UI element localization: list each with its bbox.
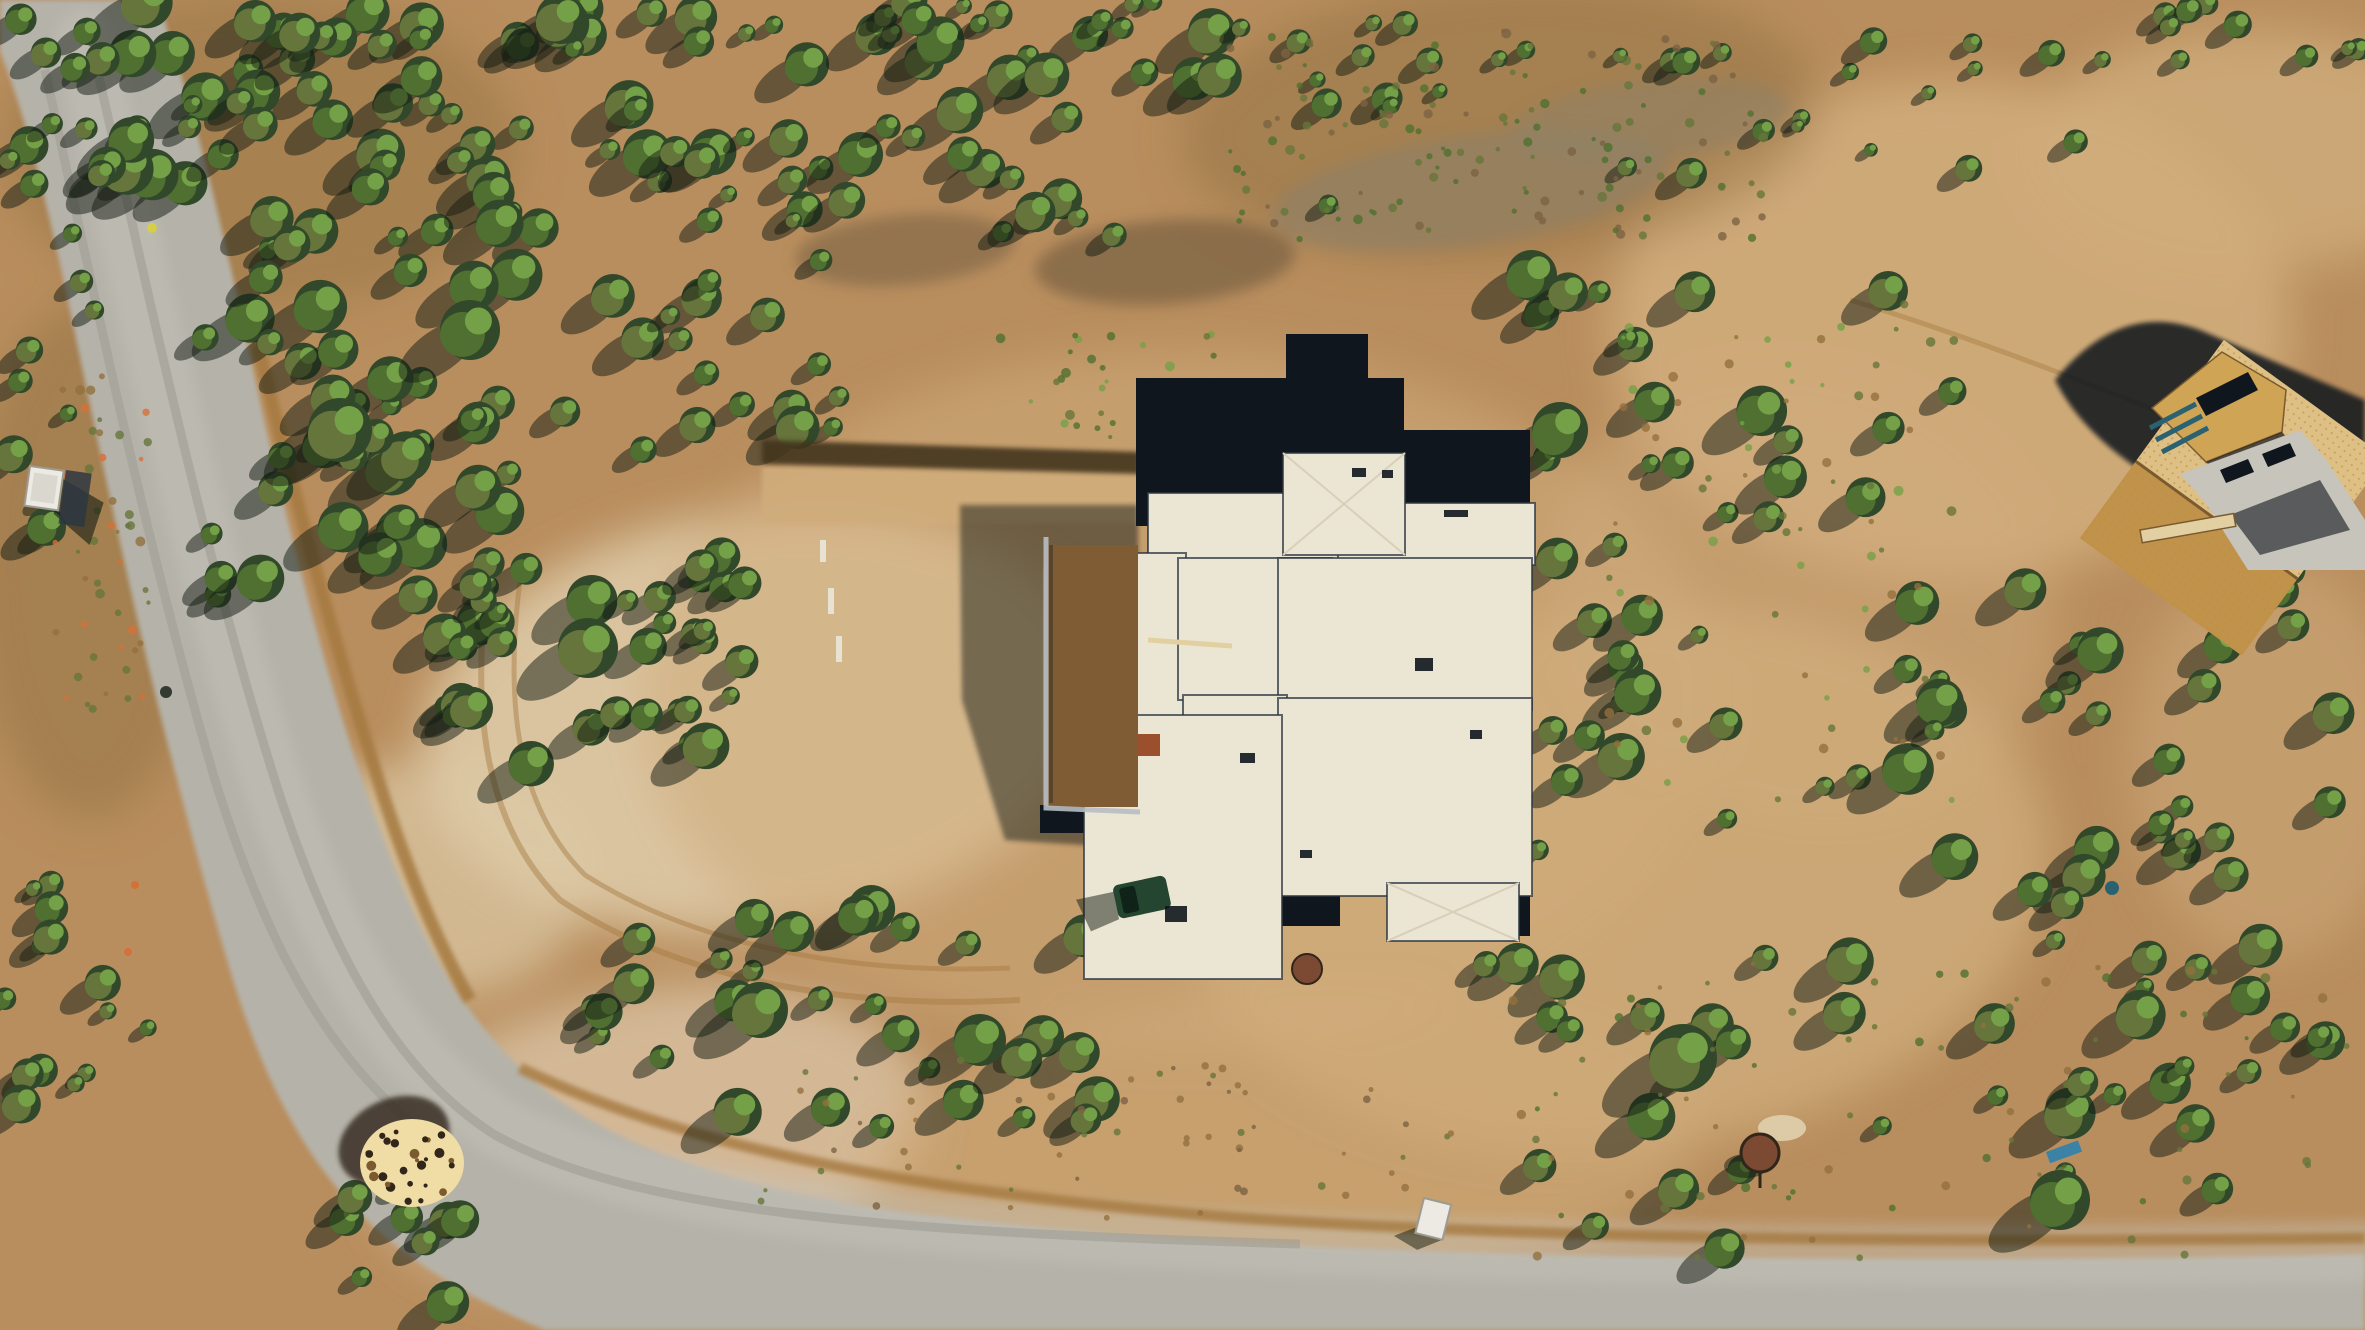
tree-canopy [588, 581, 611, 604]
tree-canopy [1555, 409, 1580, 434]
tree-canopy [129, 36, 150, 57]
tree-canopy [2143, 980, 2151, 988]
brush-dot [1914, 583, 1921, 590]
brush-dot [1616, 204, 1624, 212]
brush-dot [2260, 973, 2270, 983]
brush-dot [2093, 1037, 2098, 1042]
brush-dot [1100, 365, 1106, 371]
brush-dot [1822, 458, 1831, 467]
brush-dot [104, 692, 109, 697]
brush-dot [1239, 209, 1245, 215]
tree-canopy [1043, 58, 1063, 78]
tree-canopy [1846, 943, 1867, 964]
tree-canopy [719, 542, 736, 559]
brush-dot [1798, 527, 1802, 531]
brush-dot [1171, 1066, 1176, 1071]
tree-canopy [1527, 256, 1550, 279]
brush-dot [2245, 1036, 2249, 1040]
log-end [417, 1160, 426, 1169]
tree-canopy [147, 1021, 155, 1029]
tree-canopy [49, 895, 64, 910]
brush-dot [1363, 1096, 1371, 1104]
tree-canopy [699, 147, 715, 163]
brush-dot [1684, 1096, 1689, 1101]
log-end [438, 1131, 446, 1139]
brush-dot [109, 497, 117, 505]
roof-vent [1444, 510, 1468, 517]
tree-canopy [1870, 145, 1876, 151]
tree-canopy [2137, 996, 2159, 1018]
log-end [383, 1192, 388, 1197]
brush-dot [1588, 51, 1596, 59]
brush-dot [1537, 1012, 1545, 1020]
aerial-photo [0, 0, 2365, 1330]
tree-canopy [1439, 85, 1446, 92]
brush-dot [140, 694, 146, 700]
brush-dot [1105, 379, 1109, 383]
brush-dot [1982, 1154, 1990, 1162]
tree-canopy [1886, 416, 1901, 431]
tree-canopy [127, 123, 148, 144]
brush-dot [1211, 353, 1217, 359]
brush-dot [758, 1198, 765, 1205]
tree-canopy [2101, 53, 2109, 61]
tree-canopy [1698, 628, 1706, 636]
brush-dot [146, 600, 150, 604]
brush-dot [1643, 214, 1651, 222]
brush-dot [1658, 1093, 1662, 1097]
brush-dot [1616, 589, 1624, 597]
tree-canopy [2183, 831, 2192, 840]
brush-dot [144, 438, 152, 446]
brush-dot [1625, 1190, 1634, 1199]
tree-canopy [2080, 859, 2099, 878]
mixing-pan [1292, 954, 1322, 984]
brush-dot [1621, 336, 1625, 340]
brush-dot [763, 1188, 767, 1192]
tree-canopy [1726, 811, 1735, 820]
brush-dot [1104, 1215, 1110, 1221]
tree-canopy [470, 267, 492, 289]
brush-dot [1696, 1192, 1704, 1200]
tree-canopy [1549, 1005, 1563, 1019]
brush-dot [2291, 1095, 2295, 1099]
tree-canopy [367, 173, 384, 190]
brush-dot [1894, 486, 1904, 496]
tree-canopy [107, 1004, 115, 1012]
brush-dot [1824, 695, 1830, 701]
tree-canopy [497, 604, 506, 613]
brush-dot [2181, 1251, 2189, 1259]
log-end [425, 1125, 431, 1131]
brush-dot [97, 417, 102, 422]
brush-dot [1710, 41, 1715, 46]
survey-stake [828, 588, 834, 614]
brush-dot [99, 373, 105, 379]
roof-vent [1415, 658, 1433, 671]
brush-dot [1819, 744, 1829, 754]
brush-dot [1641, 103, 1646, 108]
brush-dot [1114, 1129, 1121, 1136]
brush-dot [1400, 1155, 1405, 1160]
brush-dot [1713, 1124, 1718, 1129]
brush-dot [913, 1118, 918, 1123]
log-end [418, 1198, 423, 1203]
brush-dot [1644, 1028, 1651, 1035]
brush-dot [1072, 333, 1078, 339]
brush-dot [2302, 1157, 2311, 1166]
tree-canopy [85, 1066, 93, 1074]
brush-dot [1385, 111, 1393, 119]
tree-canopy [524, 557, 538, 571]
brush-dot [1388, 203, 1397, 212]
tree-canopy [1991, 1008, 2009, 1026]
brush-dot [86, 386, 95, 395]
brush-dot [1535, 1106, 1540, 1111]
brush-dot [1636, 169, 1641, 174]
brush-dot [1415, 222, 1424, 231]
tree-canopy [18, 1089, 36, 1107]
tree-canopy [408, 258, 423, 273]
brush-dot [2186, 966, 2195, 975]
brush-dot [1453, 179, 1458, 184]
tree-canopy [1885, 276, 1903, 294]
brush-dot [1772, 1184, 1778, 1190]
brush-dot [1430, 102, 1436, 108]
tree-canopy [2049, 43, 2061, 55]
brush-dot [2014, 997, 2019, 1002]
brush-dot [802, 1069, 808, 1075]
tree-canopy [755, 989, 780, 1014]
brush-dot [1108, 435, 1112, 439]
brush-dot [81, 621, 88, 628]
tree-canopy [100, 163, 112, 175]
tree-canopy [962, 141, 978, 157]
brush-dot [1802, 672, 1808, 678]
brush-dot [1627, 995, 1635, 1003]
brush-dot [1236, 218, 1242, 224]
tree-canopy [473, 572, 487, 586]
brush-dot [1743, 473, 1748, 478]
brush-dot [1075, 1177, 1079, 1181]
brush-dot [1227, 44, 1235, 52]
brush-dot [1579, 1057, 1585, 1063]
brush-dot [1303, 121, 1311, 129]
tree-canopy [1076, 209, 1085, 218]
brush-dot [1405, 124, 1414, 133]
tree-canopy [8, 152, 17, 161]
roof-volume [1278, 698, 1532, 896]
woodpile-body [360, 1119, 464, 1207]
tree-canopy [420, 29, 431, 40]
brush-dot [1073, 422, 1080, 429]
brush-dot [996, 334, 1006, 344]
brush-dot [1553, 1092, 1558, 1097]
brush-dot [2318, 993, 2328, 1003]
brush-dot [1604, 708, 1614, 718]
brush-dot [1580, 88, 1586, 94]
brush-dot [1448, 1130, 1454, 1136]
tree-canopy [329, 104, 347, 122]
tree-canopy [1121, 20, 1131, 30]
brush-dot [53, 629, 60, 636]
tree-canopy [1881, 1119, 1890, 1128]
tree-canopy [1514, 948, 1533, 967]
brush-dot [1403, 1121, 1409, 1127]
tree-canopy [43, 41, 57, 55]
brush-dot [1268, 136, 1277, 145]
brush-dot [2202, 1011, 2208, 1017]
tree-canopy [1675, 1174, 1693, 1192]
brush-dot [1606, 575, 1612, 581]
tree-canopy [874, 996, 884, 1006]
tree-canopy [507, 464, 518, 475]
brush-dot [1740, 421, 1745, 426]
brush-dot [1303, 63, 1307, 67]
tree-canopy [100, 969, 116, 985]
tree-canopy [169, 37, 189, 57]
brush-dot [957, 1057, 965, 1065]
tree-canopy [2291, 613, 2305, 627]
brush-dot [1639, 231, 1647, 239]
brush-dot [908, 1098, 915, 1105]
tree-canopy [583, 626, 610, 653]
tree-canopy [1684, 51, 1696, 63]
tree-canopy [33, 882, 41, 890]
brush-dot [1416, 128, 1422, 134]
tree-canopy [1619, 50, 1626, 57]
tree-canopy [1677, 1033, 1708, 1064]
tree-canopy [2327, 790, 2341, 804]
tree-canopy [844, 186, 861, 203]
brush-dot [797, 1087, 804, 1094]
tree-canopy [1498, 52, 1506, 60]
tree-canopy [785, 124, 802, 141]
brush-dot [96, 429, 103, 436]
tree-canopy [1626, 331, 1635, 340]
log-end [400, 1167, 408, 1175]
log-end [369, 1172, 378, 1181]
brush-dot [1299, 154, 1305, 160]
tree-canopy [2093, 832, 2113, 852]
tree-canopy [296, 18, 314, 36]
tree-canopy [2257, 929, 2277, 949]
brush-dot [1016, 1097, 1023, 1104]
brush-dot [1068, 349, 1073, 354]
tree-canopy [1240, 21, 1248, 29]
tree-canopy [751, 904, 769, 922]
brush-dot [1140, 342, 1146, 348]
tree-canopy [27, 340, 39, 352]
tree-canopy [202, 78, 224, 100]
brush-dot [125, 695, 132, 702]
brush-dot [1523, 73, 1528, 78]
tree-canopy [837, 389, 846, 398]
tree-canopy [902, 916, 915, 929]
brush-dot [1764, 336, 1771, 343]
tree-canopy [192, 97, 200, 105]
brush-dot [1275, 116, 1280, 121]
brush-dot [1420, 84, 1429, 93]
brush-dot [1705, 475, 1712, 482]
tree-canopy [1758, 392, 1781, 415]
brush-dot [1503, 121, 1508, 126]
tree-canopy [2228, 861, 2244, 877]
roof-vent [1382, 470, 1393, 478]
tree-canopy [512, 255, 535, 278]
brush-dot [2062, 1164, 2066, 1168]
tree-canopy [1598, 283, 1608, 293]
tree-canopy [702, 728, 723, 749]
tree-canopy [982, 154, 1000, 172]
brush-dot [1029, 399, 1034, 404]
tree-canopy [536, 213, 554, 231]
tree-canopy [563, 400, 577, 414]
brush-dot [900, 1148, 908, 1156]
tree-canopy [203, 327, 215, 339]
tree-canopy [2166, 748, 2180, 762]
log-end [394, 1130, 399, 1135]
tree-canopy [2217, 826, 2230, 839]
brush-dot [2063, 1080, 2071, 1088]
brush-dot [1685, 118, 1695, 128]
brush-dot [1435, 165, 1439, 169]
brush-dot [1938, 1045, 1944, 1051]
brush-dot [1426, 227, 1432, 233]
brush-dot [1342, 1192, 1349, 1199]
brush-dot [1268, 33, 1276, 41]
tree-canopy [1101, 12, 1111, 22]
tree-canopy [794, 411, 814, 431]
brush-dot [1724, 150, 1730, 156]
brush-dot [2128, 1235, 2136, 1243]
tree-canopy [1849, 65, 1857, 73]
brush-dot [1652, 434, 1659, 441]
log-end [366, 1161, 376, 1171]
brush-dot [1871, 392, 1880, 401]
brush-dot [1523, 137, 1532, 146]
tree-canopy [380, 33, 393, 46]
tree-canopy [268, 201, 288, 221]
tree-canopy [383, 154, 397, 168]
brush-dot [1709, 74, 1718, 83]
brush-dot [1300, 94, 1307, 101]
brush-dot [1457, 149, 1464, 156]
tree-canopy [660, 1048, 671, 1059]
brush-dot [1415, 159, 1422, 166]
tree-canopy [2146, 945, 2162, 961]
brush-dot [143, 587, 149, 593]
brush-dot [1743, 121, 1748, 126]
brush-dot [1784, 398, 1789, 403]
brush-dot [2027, 1224, 2031, 1228]
yellow-marker [147, 223, 157, 233]
tree-canopy [461, 635, 474, 648]
brush-dot [822, 1099, 829, 1106]
brush-dot [1613, 176, 1618, 181]
tree-canopy [1721, 45, 1729, 53]
tree-canopy [707, 272, 718, 283]
brush-dot [1078, 1106, 1086, 1114]
brush-dot [1210, 1073, 1216, 1079]
tree-canopy [256, 561, 277, 582]
tree-canopy [1327, 197, 1336, 206]
rooftop-hatch [1136, 734, 1160, 756]
tree-canopy [1591, 608, 1607, 624]
brush-dot [2041, 977, 2051, 987]
brush-dot [1797, 562, 1804, 569]
brush-dot [1219, 1065, 1227, 1073]
brush-dot [1600, 140, 1606, 146]
tree-canopy [402, 438, 425, 461]
log-end [405, 1198, 412, 1205]
tree-canopy [352, 1184, 368, 1200]
brush-dot [1915, 1037, 1924, 1046]
survey-stake [820, 540, 826, 562]
brush-dot [1673, 44, 1681, 52]
brush-dot [1206, 1081, 1211, 1086]
tree-canopy [18, 372, 29, 383]
log-end [383, 1137, 390, 1144]
tree-canopy [475, 131, 491, 147]
brush-dot [75, 385, 85, 395]
brush-dot [1061, 368, 1071, 378]
tree-canopy [2215, 1177, 2229, 1191]
brush-dot [1694, 1254, 1700, 1260]
tree-canopy [1564, 768, 1578, 782]
tree-canopy [832, 420, 841, 429]
tree-canopy [2113, 1086, 2123, 1096]
brush-dot [1758, 213, 1765, 220]
tree-canopy [257, 111, 273, 127]
brush-dot [1431, 41, 1439, 49]
tree-canopy [1372, 17, 1380, 25]
brush-dot [1660, 1203, 1669, 1212]
brush-dot [1238, 1129, 1245, 1136]
tree-canopy [1626, 160, 1635, 169]
tree-canopy [496, 206, 517, 227]
tree-canopy [1112, 226, 1123, 237]
tree-canopy [500, 631, 513, 644]
brush-dot [1099, 385, 1106, 392]
brush-dot [1233, 165, 1241, 173]
tree-canopy [2074, 132, 2085, 143]
brush-dot [1201, 1062, 1208, 1069]
brush-dot [1540, 197, 1549, 206]
tree-canopy [819, 252, 829, 262]
tree-canopy [1484, 954, 1496, 966]
brush-dot [1539, 217, 1547, 225]
log-end [407, 1181, 413, 1187]
tree-canopy [339, 508, 362, 531]
brush-dot [2009, 1137, 2014, 1142]
brush-dot [1529, 107, 1535, 113]
tree-canopy [912, 128, 923, 139]
brush-dot [858, 1121, 863, 1126]
brush-dot [1430, 62, 1440, 72]
tree-canopy [320, 25, 333, 38]
tree-canopy [218, 565, 233, 580]
brush-dot [1775, 796, 1781, 802]
brush-dot [1429, 173, 1438, 182]
brush-dot [1276, 64, 1282, 70]
roof-volume [1278, 558, 1532, 710]
tree-canopy [1782, 461, 1801, 480]
log-end [385, 1182, 391, 1188]
brush-dot [89, 705, 97, 713]
brush-dot [76, 550, 80, 554]
tree-canopy [1723, 711, 1738, 726]
